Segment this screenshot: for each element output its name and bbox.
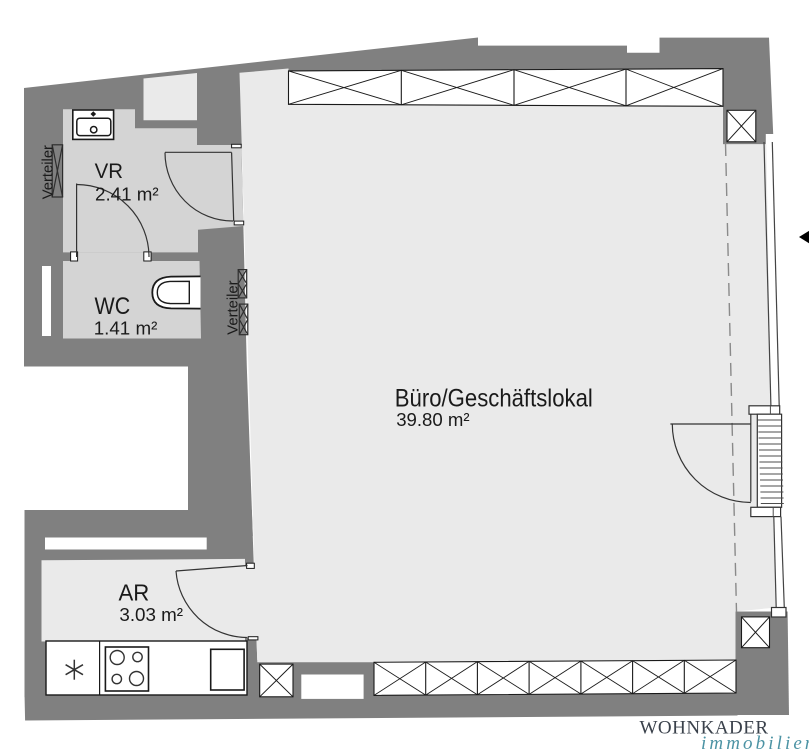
svg-text:39.80 m²: 39.80 m²	[396, 409, 469, 430]
svg-text:AR: AR	[119, 579, 150, 605]
svg-text:2.41 m²: 2.41 m²	[95, 183, 159, 204]
svg-text:WC: WC	[95, 293, 131, 320]
svg-text:3.03 m²: 3.03 m²	[119, 604, 183, 625]
svg-text:VR: VR	[95, 159, 123, 183]
svg-text:immobilien: immobilien	[701, 733, 809, 751]
svg-text:Verteiler: Verteiler	[226, 280, 242, 334]
svg-text:Verteiler: Verteiler	[40, 145, 56, 199]
svg-text:1.41 m²: 1.41 m²	[94, 317, 158, 338]
